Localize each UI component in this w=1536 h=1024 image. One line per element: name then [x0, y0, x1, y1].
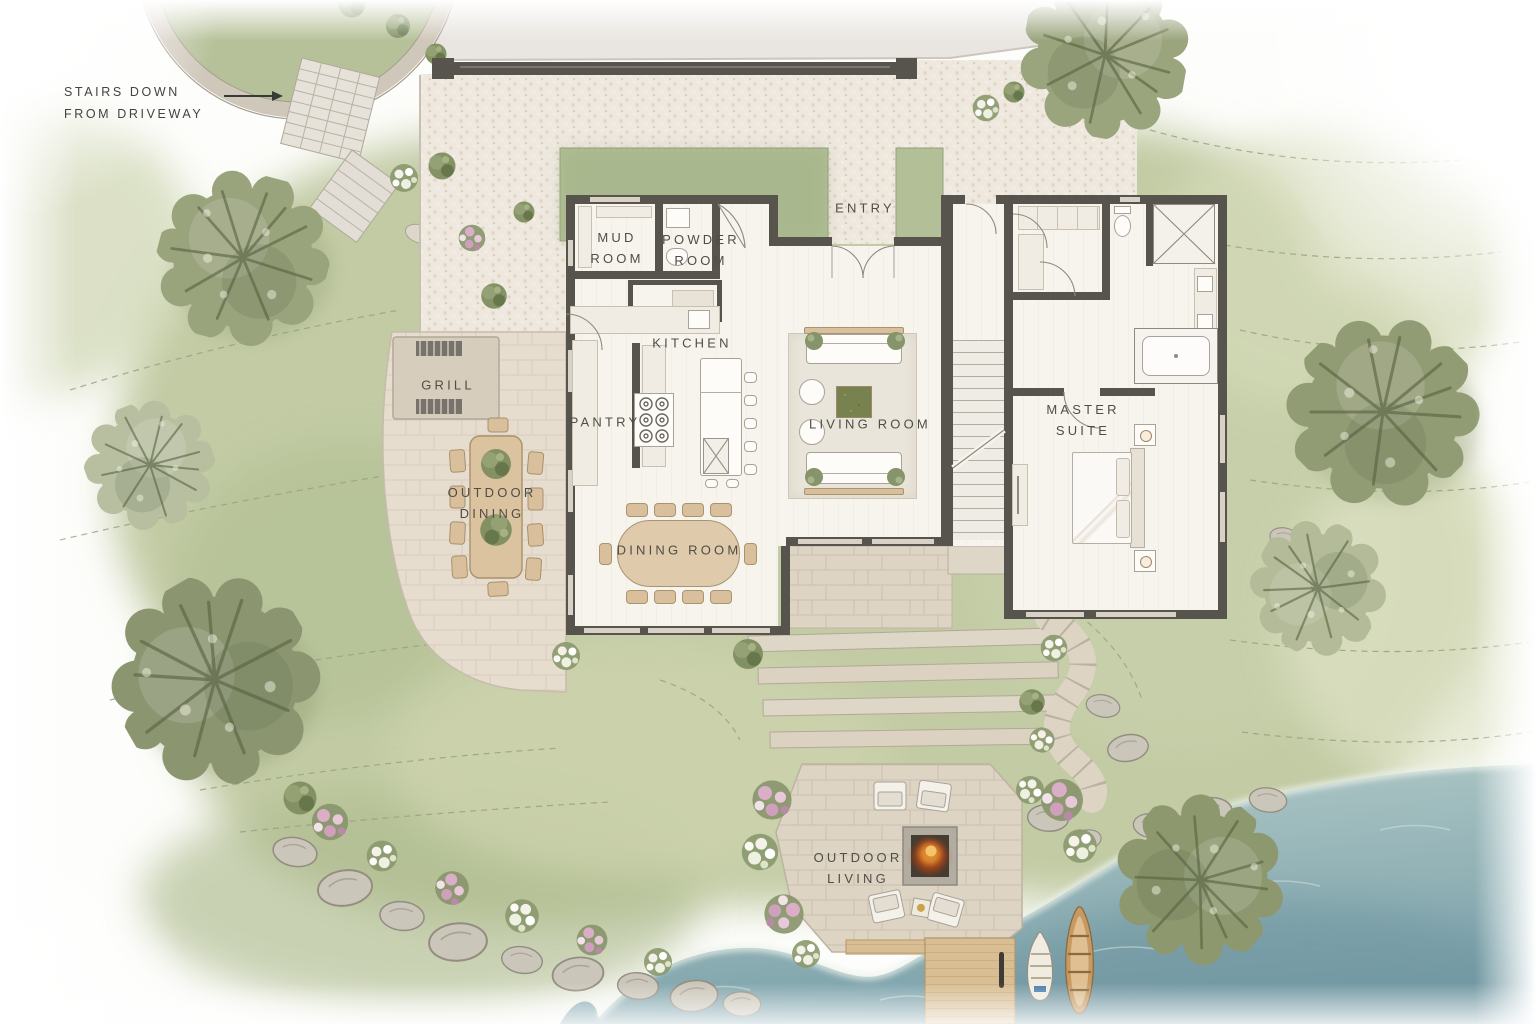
sofa	[806, 452, 902, 484]
room-label-dining-room: DINING ROOM	[617, 541, 742, 562]
driveway-wall-inlay	[460, 66, 890, 68]
window	[1220, 415, 1225, 463]
label-line: MUD	[597, 230, 636, 245]
label-line: ENTRY	[835, 201, 895, 216]
dining-chair	[599, 543, 612, 565]
window	[568, 575, 573, 615]
nightstand-lamp	[1140, 430, 1152, 442]
kitchen-sink	[688, 310, 710, 329]
dining-chair	[682, 590, 704, 604]
nightstand-lamp	[1140, 556, 1152, 568]
island-stool	[744, 395, 757, 406]
label-line: GRILL	[421, 378, 475, 393]
toilet	[1114, 206, 1131, 214]
room-label-living-room: LIVING ROOM	[809, 415, 931, 436]
dresser-handle	[1017, 476, 1019, 514]
bed-pillow	[1116, 500, 1130, 538]
window	[1220, 492, 1225, 542]
wall	[953, 195, 965, 204]
label-line: OUTDOOR	[814, 850, 903, 865]
room-label-grill: GRILL	[421, 376, 475, 397]
label-line: OUTDOOR	[448, 485, 537, 500]
wall	[1013, 292, 1110, 300]
window	[872, 539, 934, 544]
label-line: LIVING	[827, 871, 889, 886]
label-line: KITCHEN	[652, 336, 731, 351]
window	[1120, 197, 1140, 202]
wall	[1013, 388, 1064, 396]
room-label-outdoor-living: OUTDOOR LIVING	[814, 848, 903, 890]
driveway-stairs	[281, 58, 479, 311]
room-label-master-suite: MASTER SUITE	[1046, 400, 1119, 442]
side-table	[911, 898, 931, 918]
island-stool	[726, 479, 739, 488]
dining-chair	[710, 590, 732, 604]
wall	[894, 237, 944, 246]
room-label-powder-room: POWDER ROOM	[662, 230, 740, 272]
window	[584, 628, 640, 633]
label-line: FROM DRIVEWAY	[64, 107, 203, 121]
sofa	[806, 334, 902, 364]
wave-lines	[700, 826, 1450, 1005]
wall	[781, 546, 790, 635]
bed-headboard	[1130, 448, 1145, 548]
mudroom-bench	[596, 206, 652, 218]
fire-pit	[903, 827, 957, 885]
sofa-back-line	[806, 343, 902, 344]
lounge-chair	[799, 379, 825, 405]
master-wardrobe	[1018, 234, 1044, 290]
driveway	[405, 0, 1105, 60]
dining-chair	[626, 503, 648, 517]
dining-chair	[710, 503, 732, 517]
room-label-mud-room: MUD ROOM	[590, 228, 643, 270]
window	[568, 240, 573, 266]
wall	[1102, 204, 1110, 300]
winding-path	[1048, 618, 1094, 800]
window	[712, 628, 770, 633]
wall	[941, 195, 953, 546]
window	[648, 628, 704, 633]
driveway-wall	[432, 62, 917, 75]
site-plan: STAIRS DOWN FROM DRIVEWAY MUD ROOM POWDE…	[0, 0, 1536, 1024]
dock-cleat	[999, 952, 1004, 988]
label-line: LIVING ROOM	[809, 417, 931, 432]
shower	[1153, 204, 1215, 264]
canoe	[1066, 907, 1094, 1014]
island-stool	[705, 479, 718, 488]
lake-water	[560, 764, 1536, 1024]
label-line: PANTRY	[570, 415, 641, 430]
wall	[1100, 388, 1155, 396]
sofa-back-line	[806, 473, 902, 474]
window	[1096, 612, 1176, 617]
console-table	[804, 327, 904, 334]
island-divider	[700, 392, 742, 393]
bathtub-drain	[1174, 354, 1178, 358]
stairs-annotation: STAIRS DOWN FROM DRIVEWAY	[64, 82, 203, 126]
room-label-kitchen: KITCHEN	[652, 334, 731, 355]
toilet	[1114, 215, 1131, 237]
driveway-wall-cap	[896, 58, 917, 79]
label-line: MASTER	[1046, 402, 1119, 417]
wall	[566, 271, 718, 279]
label-line: ROOM	[674, 253, 727, 268]
boat-dock	[846, 938, 1015, 1024]
dining-chair	[654, 590, 676, 604]
label-line: DINING ROOM	[617, 543, 742, 558]
driveway-wall-cap	[432, 58, 454, 79]
window	[590, 197, 640, 202]
wall	[1004, 195, 1013, 619]
island-stool	[744, 464, 757, 475]
label-line: ROOM	[590, 251, 643, 266]
label-line: DINING	[460, 506, 525, 521]
wall	[770, 237, 832, 246]
console-table	[804, 488, 904, 495]
dining-chair	[682, 503, 704, 517]
wardrobe-dividers	[1018, 206, 1100, 230]
label-line: STAIRS DOWN	[64, 85, 180, 99]
annotation-arrow-head	[272, 91, 283, 101]
island-stool	[744, 441, 757, 452]
dresser	[1012, 464, 1028, 526]
window	[798, 539, 862, 544]
island-stool	[744, 372, 757, 383]
wall	[1218, 195, 1227, 619]
room-label-entry: ENTRY	[835, 199, 895, 220]
window	[1026, 612, 1084, 617]
wall	[1146, 204, 1153, 266]
dining-chair	[626, 590, 648, 604]
annotation-arrow	[224, 95, 274, 97]
wall	[1008, 195, 1227, 204]
interior-stairs	[953, 340, 1004, 540]
vanity-sink	[1197, 276, 1213, 292]
label-line: SUITE	[1056, 423, 1110, 438]
dining-chair	[654, 503, 676, 517]
island-range	[703, 438, 729, 474]
label-line: POWDER	[662, 232, 740, 247]
coffee-table	[836, 386, 872, 418]
dining-chair	[744, 543, 757, 565]
island-stool	[744, 418, 757, 429]
rowboat	[1027, 932, 1052, 1000]
powder-sink	[666, 208, 690, 228]
room-label-pantry: PANTRY	[570, 413, 641, 434]
room-label-outdoor-dining: OUTDOOR DINING	[448, 483, 537, 525]
bed-pillow	[1116, 458, 1130, 496]
